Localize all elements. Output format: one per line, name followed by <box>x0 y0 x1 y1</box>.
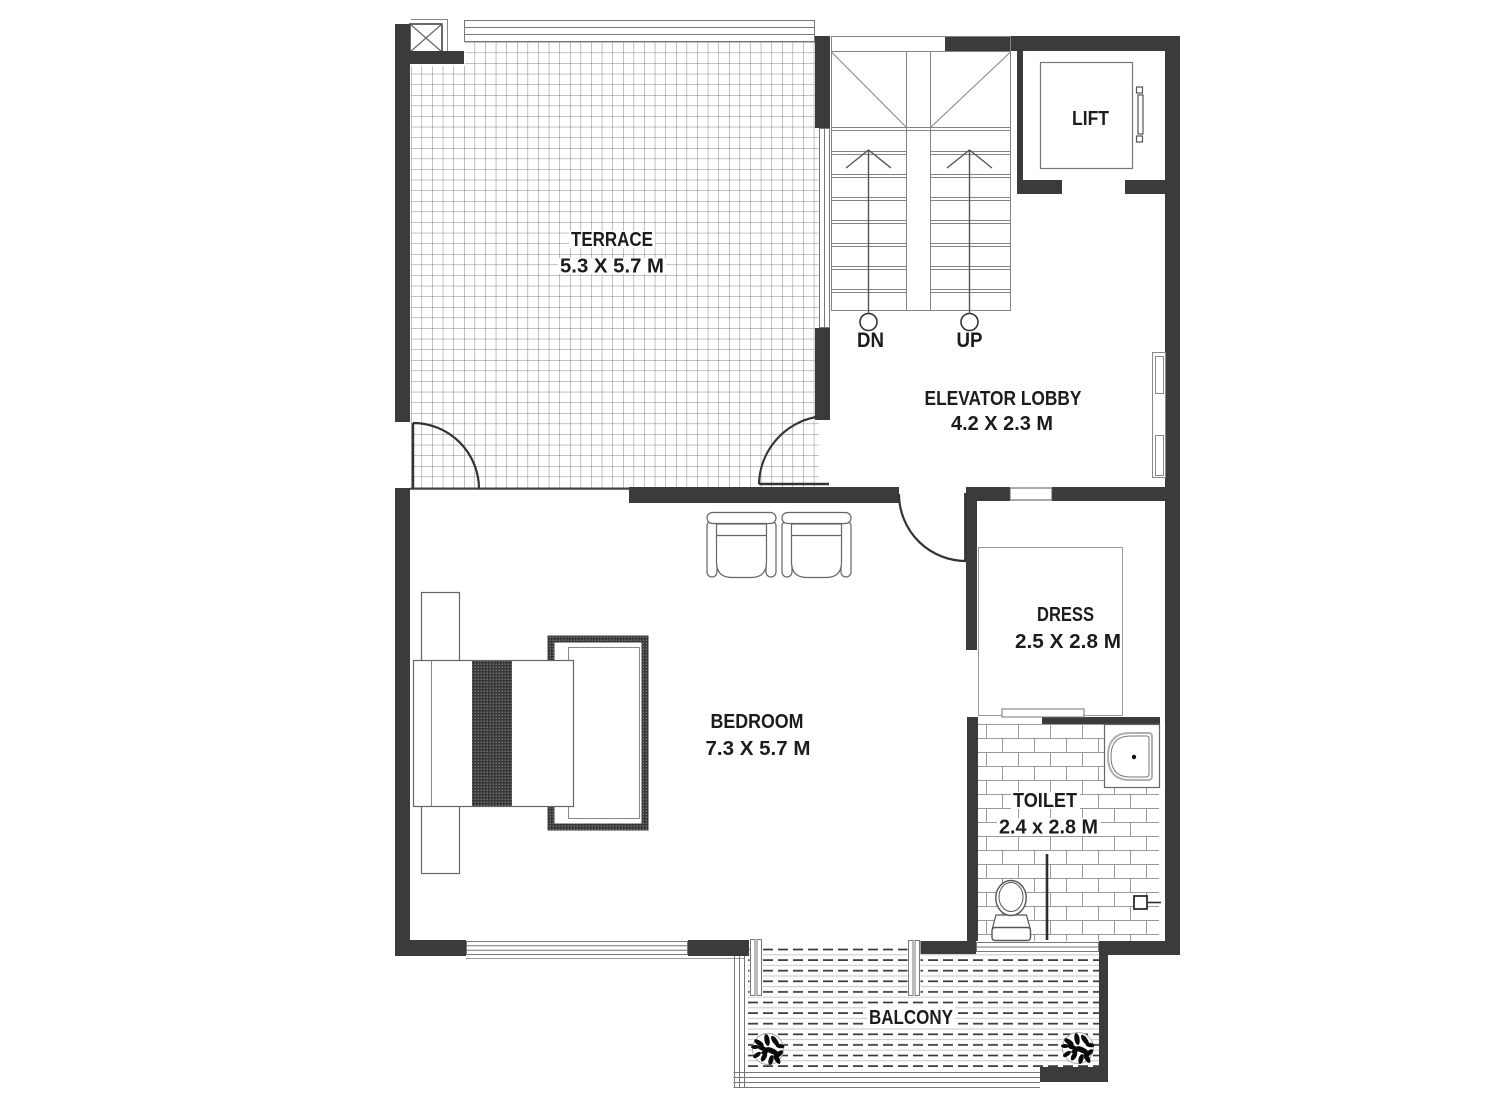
svg-text:TOILET: TOILET <box>1013 789 1077 812</box>
svg-text:2.5 X 2.8 M: 2.5 X 2.8 M <box>1015 630 1121 653</box>
svg-text:UP: UP <box>957 328 983 352</box>
svg-text:BALCONY: BALCONY <box>869 1006 953 1029</box>
svg-text:TERRACE: TERRACE <box>571 228 653 251</box>
svg-text:DRESS: DRESS <box>1037 603 1094 626</box>
svg-text:4.2 X 2.3 M: 4.2 X 2.3 M <box>951 412 1053 435</box>
svg-text:BEDROOM: BEDROOM <box>711 710 804 733</box>
svg-text:ELEVATOR LOBBY: ELEVATOR LOBBY <box>925 387 1082 410</box>
svg-text:2.4 x 2.8 M: 2.4 x 2.8 M <box>999 816 1098 839</box>
svg-text:LIFT: LIFT <box>1072 107 1109 130</box>
svg-text:7.3 X 5.7 M: 7.3 X 5.7 M <box>706 737 811 760</box>
svg-text:DN: DN <box>857 328 884 352</box>
svg-text:5.3 X 5.7 M: 5.3 X 5.7 M <box>560 255 664 278</box>
